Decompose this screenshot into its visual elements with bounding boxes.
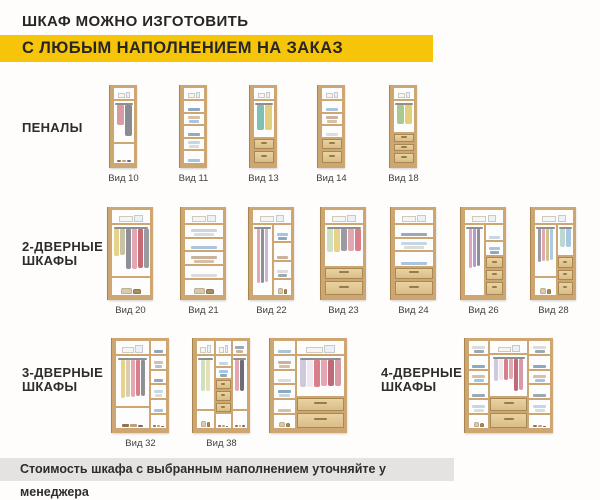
folded-clothes	[278, 350, 292, 353]
folded-clothes-stack	[185, 152, 203, 162]
compartment-boxes	[184, 88, 204, 101]
folded-clothes-stack	[152, 357, 165, 368]
compartment-boxes	[297, 341, 344, 356]
garment	[121, 360, 125, 398]
drawer-front	[322, 151, 342, 163]
garment	[538, 229, 541, 261]
cabinet-sections	[114, 88, 134, 163]
cabinet-вид-21	[181, 207, 226, 300]
hanging-clothes	[558, 229, 572, 253]
drawer-front	[490, 413, 527, 428]
cabinet-top-shelf	[253, 210, 291, 225]
hanging-clothes	[114, 229, 149, 274]
compartment-shelf	[274, 400, 295, 415]
folded-clothes	[188, 141, 201, 144]
bag	[278, 288, 283, 294]
compartment-drawer	[395, 268, 433, 282]
storage-box	[135, 345, 142, 352]
drawer-handle	[492, 261, 497, 263]
garment	[494, 359, 498, 381]
view-label: Вид 18	[372, 173, 436, 184]
folded-clothes-stack	[396, 226, 432, 236]
folded-clothes-stack	[323, 102, 341, 111]
cabinet-column	[231, 341, 248, 428]
folded-clothes	[154, 409, 163, 412]
cabinet-column	[253, 225, 272, 295]
drawer-front	[558, 257, 573, 268]
compartment-hang	[253, 225, 272, 295]
drawer-handle	[563, 286, 567, 288]
garment	[509, 359, 513, 380]
cabinet-вид-23	[321, 207, 366, 300]
cabinet-вид-26	[461, 207, 506, 300]
folded-clothes-stack	[470, 401, 487, 412]
garment	[132, 229, 137, 268]
garment	[334, 229, 340, 251]
drawer-handle	[401, 146, 406, 148]
folded-clothes	[401, 233, 427, 236]
storage-box	[347, 215, 356, 223]
garment	[477, 229, 480, 266]
compartment-hang	[197, 356, 214, 411]
folded-clothes-stack	[487, 243, 502, 254]
cabinet-column	[469, 341, 488, 428]
storage-box	[488, 215, 497, 223]
compartment-boxes	[325, 210, 363, 225]
drawer-handle	[492, 286, 497, 288]
folded-clothes-stack	[186, 226, 222, 236]
compartment-shelf	[274, 356, 295, 371]
folded-clothes	[188, 159, 201, 162]
shoe	[222, 425, 225, 427]
folded-clothes-stack	[217, 369, 230, 377]
garment	[131, 360, 135, 397]
cabinet-sections	[253, 225, 291, 295]
folded-clothes-stack	[323, 115, 341, 124]
drawer-handle	[504, 402, 514, 404]
cabinet-column	[185, 210, 223, 295]
compartment-drawer	[558, 257, 573, 270]
group-label-4-door: 4-ДВЕРНЫЕ ШКАФЫ	[381, 366, 462, 394]
compartment-drawer	[297, 398, 344, 413]
folded-clothes-stack	[275, 386, 294, 397]
cabinet-sections	[254, 88, 274, 163]
compartment-boxes	[490, 341, 527, 355]
garment	[257, 229, 260, 283]
folded-clothes	[533, 394, 546, 397]
footer-note: Стоимость шкафа с выбранным наполнением …	[0, 458, 454, 500]
drawer-handle	[221, 394, 225, 396]
compartment-shelf	[151, 341, 166, 356]
garment	[206, 360, 210, 391]
folded-clothes	[236, 350, 243, 353]
compartment-hang	[114, 101, 134, 145]
compartment-hang	[325, 225, 363, 268]
bag	[474, 422, 479, 427]
storage-box	[119, 216, 133, 222]
drawer-handle	[221, 383, 225, 385]
compartment-drawer	[297, 413, 344, 428]
garment	[240, 360, 244, 391]
cabinet-sections	[535, 225, 573, 295]
hanging-clothes	[115, 105, 133, 141]
compartment-shoes	[116, 408, 149, 428]
folded-clothes	[535, 379, 545, 382]
storage-box	[196, 92, 200, 98]
shoe	[161, 426, 163, 427]
folded-clothes	[155, 394, 162, 397]
storage-box	[406, 92, 410, 98]
folded-clothes	[326, 133, 339, 136]
shoe	[122, 424, 129, 427]
cabinet-sections	[395, 210, 433, 295]
compartment-boxes	[112, 210, 150, 225]
shoe	[218, 425, 221, 427]
compartment-shelf	[395, 225, 433, 239]
compartment-shelf	[185, 239, 223, 253]
shoe	[533, 425, 537, 427]
garment	[114, 229, 119, 255]
folded-clothes	[154, 361, 163, 364]
compartment-shelf	[395, 239, 433, 253]
folded-clothes-stack	[470, 372, 487, 383]
storage-box	[188, 93, 195, 98]
compartment-shelf	[486, 242, 503, 257]
compartment-shelf	[151, 371, 166, 386]
drawer-handle	[401, 156, 406, 158]
garment	[144, 229, 149, 267]
shoe	[127, 160, 130, 162]
folded-clothes	[474, 350, 484, 353]
compartment-hang	[116, 356, 149, 408]
folded-clothes	[327, 120, 337, 123]
shoe	[122, 160, 126, 163]
folded-clothes-stack	[217, 357, 230, 365]
storage-box	[118, 93, 125, 98]
drawer-front	[486, 282, 503, 295]
compartment-drawer	[558, 282, 573, 295]
view-label: Вид 21	[172, 305, 236, 316]
drawer-handle	[329, 155, 334, 157]
storage-box	[334, 92, 338, 98]
compartment-shelf	[322, 126, 342, 139]
compartment-drawer	[486, 270, 503, 283]
storage-box	[207, 215, 216, 223]
bag	[206, 289, 214, 294]
drawer-front	[394, 144, 414, 152]
folded-clothes	[279, 394, 289, 397]
compartment-hang	[233, 356, 248, 411]
compartment-drawer	[322, 139, 342, 151]
compartment-shoes	[529, 415, 550, 428]
catalog-page: ШКАФ МОЖНО ИЗГОТОВИТЬ С ЛЮБЫМ НАПОЛНЕНИЕ…	[0, 0, 600, 500]
bag	[480, 423, 484, 427]
headline-line1: ШКАФ МОЖНО ИЗГОТОВИТЬ	[22, 13, 248, 30]
cabinet-column	[274, 341, 295, 428]
shoe	[138, 425, 144, 427]
drawer-handle	[221, 406, 225, 408]
compartment-shelf	[185, 225, 223, 239]
cabinet-вид-18	[390, 85, 417, 168]
folded-clothes	[278, 274, 286, 277]
compartment-bags	[185, 280, 223, 295]
view-label: Вид 24	[382, 305, 446, 316]
compartment-bags	[469, 415, 488, 428]
garment	[519, 359, 523, 390]
garment	[125, 105, 132, 137]
cabinet-column	[112, 210, 150, 295]
folded-clothes-stack	[275, 372, 294, 383]
storage-box	[225, 345, 228, 352]
compartment-shelf	[529, 385, 550, 400]
folded-clothes	[277, 256, 288, 259]
folded-clothes	[277, 270, 288, 273]
compartment-shelf	[322, 114, 342, 127]
bag	[121, 288, 132, 294]
shoe	[543, 426, 546, 427]
cabinet-column	[184, 88, 204, 163]
cabinet-column	[214, 341, 231, 428]
bag	[279, 422, 285, 427]
folded-clothes	[474, 409, 484, 412]
cabinet-column	[465, 225, 484, 295]
folded-clothes	[154, 379, 163, 382]
cabinet-sections	[325, 210, 363, 295]
garment	[257, 105, 264, 130]
folded-clothes	[535, 409, 545, 412]
drawer-front	[486, 270, 503, 281]
folded-clothes-stack	[275, 357, 294, 368]
folded-clothes-stack	[323, 127, 341, 136]
drawer-front	[486, 257, 503, 268]
folded-clothes-stack	[470, 342, 487, 353]
folded-clothes	[154, 390, 163, 393]
view-label: Вид 23	[312, 305, 376, 316]
view-label: Вид 13	[232, 173, 296, 184]
storage-box	[276, 215, 285, 223]
folded-clothes	[278, 379, 292, 382]
drawer-front	[490, 398, 527, 411]
cabinet-unlabeled-15	[465, 338, 553, 433]
folded-clothes-stack	[275, 263, 290, 277]
cabinet-вид-38	[193, 338, 250, 433]
folded-clothes	[489, 236, 500, 239]
compartment-shelf	[274, 371, 295, 386]
cabinet-sections	[469, 341, 550, 428]
compartment-shelf	[469, 400, 488, 415]
group-label-2-door: 2-ДВЕРНЫЕ ШКАФЫ	[22, 240, 103, 268]
folded-clothes-stack	[275, 342, 294, 353]
folded-clothes	[279, 365, 289, 368]
cabinet-column	[272, 225, 291, 295]
compartment-shelf	[274, 262, 291, 280]
drawer-front	[325, 268, 363, 280]
footer-note-bar: Стоимость шкафа с выбранным наполнением …	[0, 458, 454, 481]
headline-line2: С ЛЮБЫМ НАПОЛНЕНИЕМ НА ЗАКАЗ	[0, 35, 433, 62]
garment	[504, 359, 508, 380]
drawer-handle	[261, 155, 266, 157]
storage-box	[512, 345, 520, 352]
storage-box	[498, 347, 511, 352]
folded-clothes	[235, 346, 244, 349]
folded-clothes-stack	[152, 372, 165, 383]
garment	[327, 229, 333, 252]
drawer-front	[395, 281, 433, 295]
drawer-front	[394, 134, 414, 142]
compartment-shoes	[216, 414, 231, 428]
shoe	[538, 425, 542, 427]
cabinet-sections	[112, 210, 150, 295]
compartment-shelf	[469, 356, 488, 371]
compartment-shoes	[151, 415, 166, 428]
storage-box	[558, 215, 567, 223]
folded-clothes-stack	[152, 386, 165, 397]
cabinet-top-shelf	[465, 210, 503, 225]
view-label: Вид 20	[99, 305, 163, 316]
compartment-shelf	[529, 400, 550, 415]
compartment-shoes	[233, 411, 248, 428]
compartment-shelf	[469, 371, 488, 386]
hanging-clothes	[299, 360, 342, 395]
drawer-front	[254, 151, 274, 163]
garment	[136, 360, 140, 397]
folded-clothes	[474, 379, 484, 382]
garment	[566, 229, 571, 246]
view-label: Вид 26	[452, 305, 516, 316]
storage-box	[472, 216, 486, 222]
view-label: Вид 28	[522, 305, 586, 316]
folded-clothes-stack	[530, 342, 549, 353]
drawer-handle	[504, 418, 514, 420]
cabinet-sections	[116, 341, 166, 428]
folded-clothes-stack	[275, 401, 294, 412]
folded-clothes-stack	[186, 240, 222, 250]
folded-clothes	[191, 274, 217, 277]
compartment-drawer	[558, 270, 573, 283]
folded-clothes	[219, 370, 228, 373]
compartment-shelf	[184, 101, 204, 114]
cabinet-вид-20	[108, 207, 153, 300]
compartment-shelf	[395, 252, 433, 267]
folded-clothes-stack	[530, 401, 549, 412]
hanging-clothes	[536, 229, 555, 273]
compartment-shelf	[151, 356, 166, 371]
cabinet-sections	[184, 88, 204, 163]
hanging-clothes	[492, 359, 526, 395]
cabinet-column	[197, 341, 214, 428]
group-label-3-door: 3-ДВЕРНЫЕ ШКАФЫ	[22, 366, 103, 394]
folded-clothes-stack	[152, 342, 165, 353]
drawer-front	[395, 268, 433, 280]
compartment-drawer	[322, 151, 342, 163]
compartment-shelf	[469, 385, 488, 400]
hanging-clothes	[233, 360, 246, 407]
garment	[560, 229, 565, 247]
compartment-boxes	[114, 88, 134, 101]
garment	[300, 360, 306, 388]
storage-box	[126, 92, 130, 98]
folded-clothes	[472, 346, 485, 349]
folded-clothes-stack	[185, 140, 203, 148]
garment	[405, 105, 412, 124]
hanging-clothes	[327, 229, 362, 264]
folded-clothes	[278, 237, 286, 240]
drawer-front	[558, 282, 573, 295]
shoe	[130, 424, 137, 427]
view-label: Вид 14	[300, 173, 364, 184]
garment	[126, 229, 131, 269]
drawer-handle	[314, 418, 328, 420]
compartment-drawer	[490, 413, 527, 428]
drawer-front	[216, 403, 231, 412]
cabinet-sections	[185, 210, 223, 295]
compartment-shelf	[184, 126, 204, 139]
compartment-shoes	[114, 144, 134, 163]
compartment-drawer	[325, 268, 363, 282]
folded-clothes-stack	[530, 386, 549, 397]
shoe	[117, 160, 121, 163]
cabinet-вид-22	[249, 207, 294, 300]
compartment-bags	[535, 278, 556, 295]
cabinet-column	[484, 225, 503, 295]
compartment-drawer	[490, 398, 527, 413]
compartment-shelf	[216, 368, 231, 380]
garment	[235, 360, 239, 391]
folded-clothes	[188, 116, 201, 119]
shoe	[153, 425, 156, 427]
folded-clothes-stack	[152, 401, 165, 412]
garment	[307, 360, 313, 387]
garment	[265, 229, 268, 282]
garment	[138, 229, 143, 268]
compartment-shelf	[184, 151, 204, 163]
cabinet-sections	[197, 341, 247, 428]
hanging-clothes	[254, 229, 272, 293]
garment	[473, 229, 476, 267]
folded-clothes-stack	[186, 267, 222, 277]
shoe	[239, 425, 242, 427]
cabinet-unlabeled-14	[270, 338, 347, 433]
folded-clothes	[472, 365, 485, 368]
folded-clothes-stack	[530, 372, 549, 383]
folded-clothes	[278, 390, 292, 393]
storage-box	[332, 216, 346, 222]
cabinet-вид-10	[110, 85, 137, 168]
compartment-shelf	[185, 266, 223, 280]
compartment-drawer	[216, 391, 231, 402]
drawer-handle	[339, 286, 350, 288]
storage-box	[260, 216, 274, 222]
cabinet-вид-14	[318, 85, 345, 168]
compartment-shelf	[184, 114, 204, 127]
compartment-bags	[112, 278, 150, 295]
view-label: Вид 32	[109, 438, 173, 449]
compartment-hang	[254, 101, 274, 139]
compartment-shelf	[184, 139, 204, 151]
compartment-boxes	[254, 88, 274, 101]
drawer-handle	[314, 402, 328, 404]
drawer-front	[325, 281, 363, 295]
garment	[355, 229, 361, 250]
folded-clothes	[472, 375, 485, 378]
folded-clothes-stack	[487, 226, 502, 239]
hanging-clothes	[255, 105, 273, 135]
garment	[141, 360, 145, 396]
compartment-shelf	[274, 243, 291, 261]
hanging-clothes	[198, 360, 214, 407]
cabinet-column	[527, 341, 550, 428]
garment	[321, 360, 327, 387]
